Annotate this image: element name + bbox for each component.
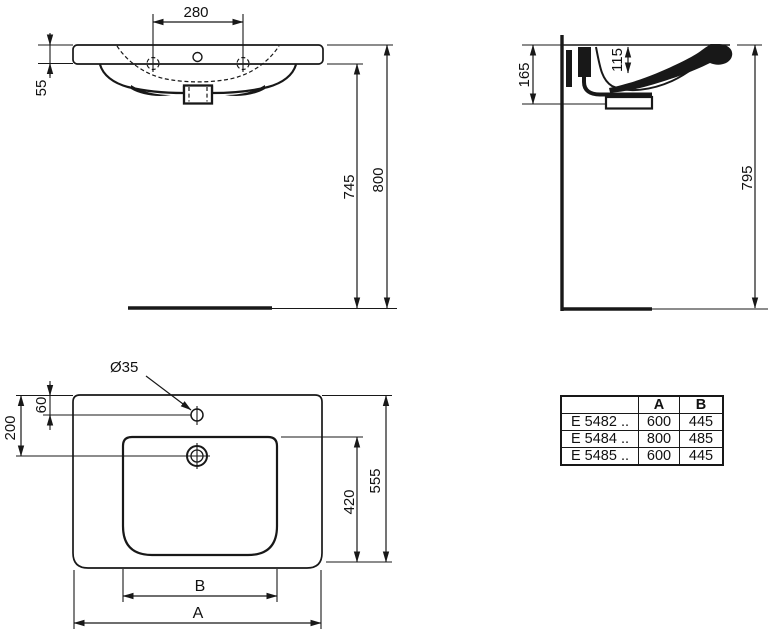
dim-label-drain-offset: 200 <box>2 415 19 440</box>
dim-label-overall-depth: 555 <box>367 468 384 493</box>
b-cell: 445 <box>680 448 724 466</box>
drawing-canvas: 280 55 745 800 165 1 <box>0 0 769 630</box>
overflow-hole <box>193 53 202 62</box>
table-row: E 5484 .. 800 485 <box>561 431 723 448</box>
technical-drawing-page: 280 55 745 800 165 1 <box>0 0 769 630</box>
a-cell: 600 <box>639 448 680 466</box>
model-cell: E 5484 .. <box>561 431 639 448</box>
drain-trap <box>606 97 652 109</box>
wall-bracket <box>566 50 572 87</box>
a-cell: 800 <box>639 431 680 448</box>
bowl-underside-right <box>212 65 296 94</box>
model-cell: E 5485 .. <box>561 448 639 466</box>
b-cell: 445 <box>680 414 724 431</box>
table-row: E 5485 .. 600 445 <box>561 448 723 466</box>
dim-label-inner-depth: 115 <box>609 48 626 72</box>
top-view: Ø35 60 200 420 555 B A <box>2 359 392 629</box>
dim-label-tap-hole-diameter: Ø35 <box>110 359 138 376</box>
side-view: 165 115 795 <box>516 35 768 311</box>
dim-label-overall-width: A <box>193 605 204 622</box>
dim-label-tap-hole-offset: 60 <box>33 397 50 414</box>
dim-label-profile-height: 165 <box>516 62 533 87</box>
drain-outlet-front <box>184 86 212 104</box>
dim-label-bowl-length: 420 <box>341 489 358 514</box>
header-model <box>561 396 639 414</box>
dim-label-height-rim: 800 <box>370 167 387 192</box>
model-cell: E 5482 .. <box>561 414 639 431</box>
size-table-header-row: A B <box>561 396 723 414</box>
dim-label-tap-spacing: 280 <box>183 4 208 21</box>
leader-line <box>146 376 191 410</box>
b-cell: 485 <box>680 431 724 448</box>
bowl-underside-left <box>100 65 184 94</box>
bowl-outline-top <box>123 437 277 555</box>
front-view: 280 55 745 800 <box>33 4 397 309</box>
dim-label-rim-thickness: 55 <box>33 80 50 97</box>
header-b: B <box>680 396 724 414</box>
dim-label-mounting-height: 795 <box>739 165 756 190</box>
a-cell: 600 <box>639 414 680 431</box>
header-a: A <box>639 396 680 414</box>
dim-label-bowl-width: B <box>195 578 206 595</box>
table-row: E 5482 .. 600 445 <box>561 414 723 431</box>
size-table: A B E 5482 .. 600 445 E 5484 .. 800 485 … <box>560 395 724 466</box>
dim-label-height-underside: 745 <box>341 174 358 199</box>
